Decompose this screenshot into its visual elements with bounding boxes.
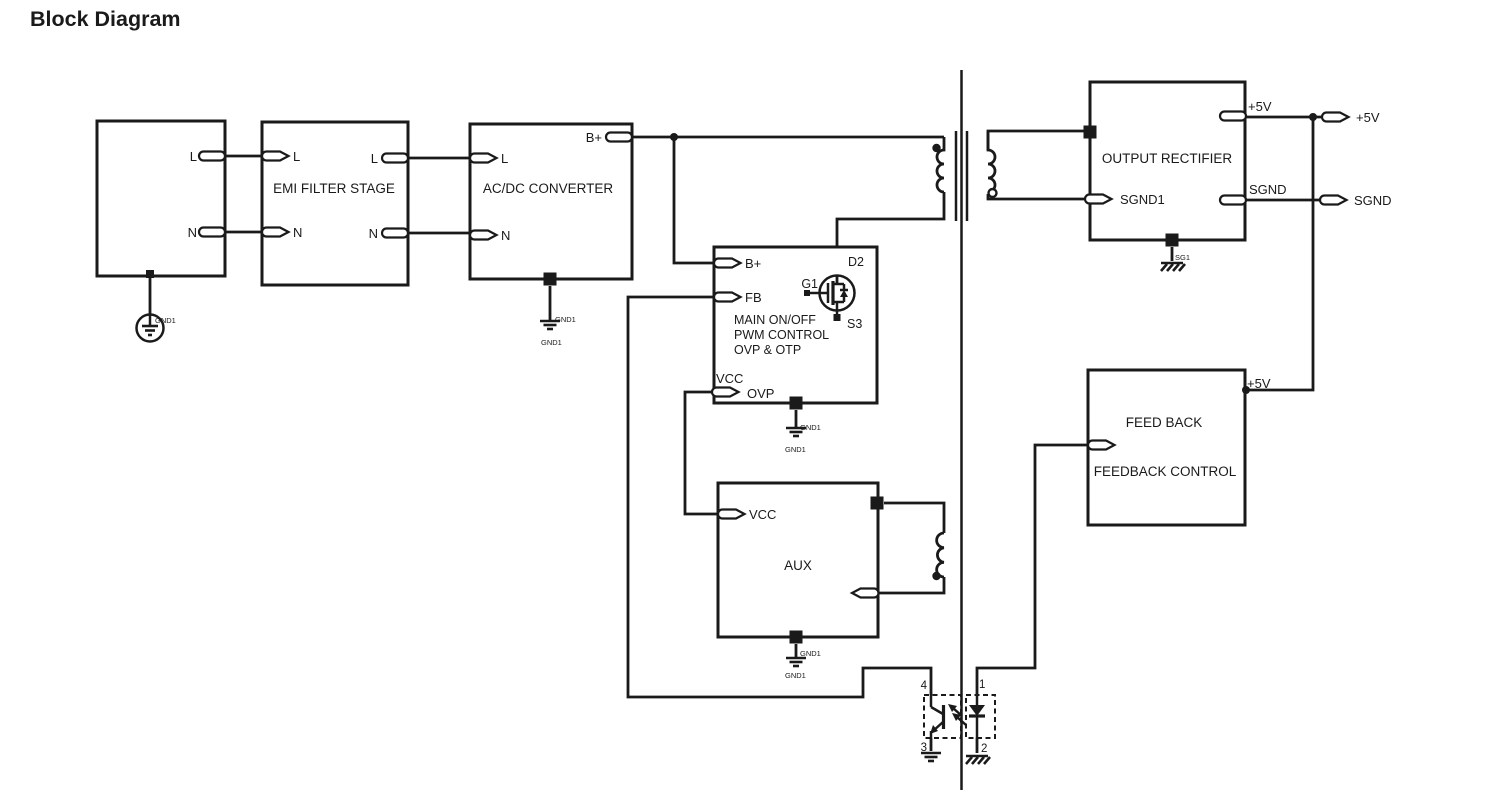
signal-ground-icon [1161, 263, 1185, 271]
acdc-box [470, 124, 632, 279]
wire-vcc-loop [685, 392, 718, 514]
aux-gnd-label-below: GND1 [785, 671, 806, 680]
transformer [932, 70, 996, 790]
or-label-sgnd: SGND [1249, 182, 1287, 197]
junction-dot [1309, 113, 1317, 121]
emi-pin-l-in [262, 152, 289, 161]
pwm-title-line2: PWM CONTROL [734, 328, 829, 342]
secondary-winding-coil [988, 131, 995, 192]
emi-label-n-out: N [369, 226, 378, 241]
emi-pin-n-in [262, 228, 289, 237]
aux-title: AUX [784, 558, 812, 573]
or-label-5v: +5V [1248, 99, 1272, 114]
opto-pin1-label: 1 [979, 679, 985, 691]
pwm-gnd-label-below: GND1 [785, 445, 806, 454]
acdc-pin-l [470, 154, 497, 163]
ac-input-box [97, 121, 225, 276]
terminal-5v-label: +5V [1356, 110, 1380, 125]
pwm-pin-bplus [714, 259, 741, 268]
emi-pin-n-out [382, 229, 408, 238]
aux-winding-coil [937, 533, 944, 577]
aux-winding-pad [871, 497, 884, 510]
pwm-label-vcc: VCC [716, 371, 743, 386]
emi-pin-l-out [382, 154, 408, 163]
aux-label-vcc: VCC [749, 507, 776, 522]
acdc-gnd-label-below: GND1 [541, 338, 562, 347]
emi-label-l-out: L [371, 151, 378, 166]
acdc-label-bplus: B+ [586, 130, 602, 145]
aux-pin-winding-return [852, 589, 879, 598]
mosfet-label-gate: G1 [801, 277, 818, 291]
opto-pin4-label: 4 [921, 680, 928, 692]
pwm-label-ovp: OVP [747, 386, 774, 401]
acdc-label-l: L [501, 151, 508, 166]
pwm-gnd-label-side: GND1 [800, 423, 821, 432]
phototransistor-icon [930, 695, 944, 738]
or-pin-sgnd [1220, 196, 1246, 205]
block-feedback: FEED BACK FEEDBACK CONTROL +5V [1088, 370, 1271, 525]
feedback-title-line2: FEEDBACK CONTROL [1094, 464, 1237, 479]
junction-dot [670, 133, 678, 141]
or-label-sgnd1: SGND1 [1120, 192, 1165, 207]
ac-input-pin-l [199, 152, 225, 161]
primary-polarity-dot [932, 144, 940, 152]
pwm-label-bplus: B+ [745, 256, 761, 271]
wire-secondary-top [988, 131, 1084, 150]
emi-filter-box [262, 122, 408, 285]
block-diagram-canvas: Block Diagram L N [0, 0, 1496, 795]
emi-label-l-in: L [293, 149, 300, 164]
aux-pin-vcc [718, 510, 745, 519]
output-terminals: +5V SGND [1320, 110, 1392, 208]
block-ac-input: L N GND1 [97, 121, 225, 342]
wire-feedback-to-opto [977, 445, 1088, 695]
acdc-gnd-pad [544, 273, 557, 286]
aux-winding-polarity-dot [932, 572, 940, 580]
mosfet-label-drain: D2 [848, 255, 864, 269]
opto-pin2-label: 2 [981, 743, 987, 755]
ground-icon [786, 658, 806, 666]
terminal-sgnd-pin [1320, 196, 1347, 205]
or-secondary-pad [1084, 126, 1097, 139]
ground-icon [921, 753, 941, 761]
wire-secondary-bottom [988, 194, 1085, 199]
aux-gnd-pad [790, 631, 803, 644]
wire-5v-to-feedback [1246, 117, 1313, 390]
secondary-polarity-dot [989, 189, 997, 197]
pwm-pin-ovp [712, 388, 739, 397]
emi-label-n-in: N [293, 225, 302, 240]
or-pin-5v [1220, 112, 1246, 121]
terminal-5v-pin [1322, 113, 1349, 122]
block-emi-filter: L N L N EMI FILTER STAGE [262, 122, 408, 285]
ac-input-label-n: N [188, 225, 197, 240]
junction-dot [1242, 386, 1250, 394]
block-aux: VCC AUX GND1 GND1 [718, 483, 944, 680]
wire-bplus-to-pwm [674, 137, 714, 263]
acdc-gnd-label-side: GND1 [555, 315, 576, 324]
or-gnd-label: SG1 [1175, 253, 1190, 262]
pwm-label-fb: FB [745, 290, 762, 305]
terminal-sgnd-label: SGND [1354, 193, 1392, 208]
or-gnd-pad [1166, 234, 1179, 247]
output-rectifier-title: OUTPUT RECTIFIER [1102, 151, 1233, 166]
signal-ground-icon [966, 756, 990, 764]
page-title: Block Diagram [30, 7, 181, 31]
acdc-pin-bplus [606, 133, 632, 142]
block-pwm-control: B+ FB VCC OVP MAIN ON/OFF PWM CONTROL OV… [712, 247, 877, 454]
ac-input-gnd-label: GND1 [155, 316, 176, 325]
aux-gnd-label-side: GND1 [800, 649, 821, 658]
acdc-label-n: N [501, 228, 510, 243]
block-diagram-page: Block Diagram L N [0, 0, 1496, 795]
acdc-pin-n [470, 231, 497, 240]
pwm-gnd-pad [790, 397, 803, 410]
ac-input-label-l: L [190, 149, 197, 164]
pwm-pin-fb [714, 293, 741, 302]
ac-input-gnd-pad [146, 270, 154, 278]
block-output-rectifier: SGND1 +5V SGND OUTPUT RECTIFIER SG1 [1084, 82, 1287, 271]
feedback-title-line1: FEED BACK [1126, 415, 1203, 430]
wire-aux-winding-top [884, 503, 944, 533]
mosfet-label-source: S3 [847, 317, 862, 331]
ac-input-pin-n [199, 228, 225, 237]
feedback-label-5v: +5V [1247, 376, 1271, 391]
emi-filter-title: EMI FILTER STAGE [273, 181, 395, 196]
pwm-title-line3: OVP & OTP [734, 343, 801, 357]
feedback-pin-in [1088, 441, 1115, 450]
acdc-title: AC/DC CONVERTER [483, 181, 614, 196]
or-pin-sgnd1 [1085, 195, 1112, 204]
pwm-title-line1: MAIN ON/OFF [734, 313, 816, 327]
